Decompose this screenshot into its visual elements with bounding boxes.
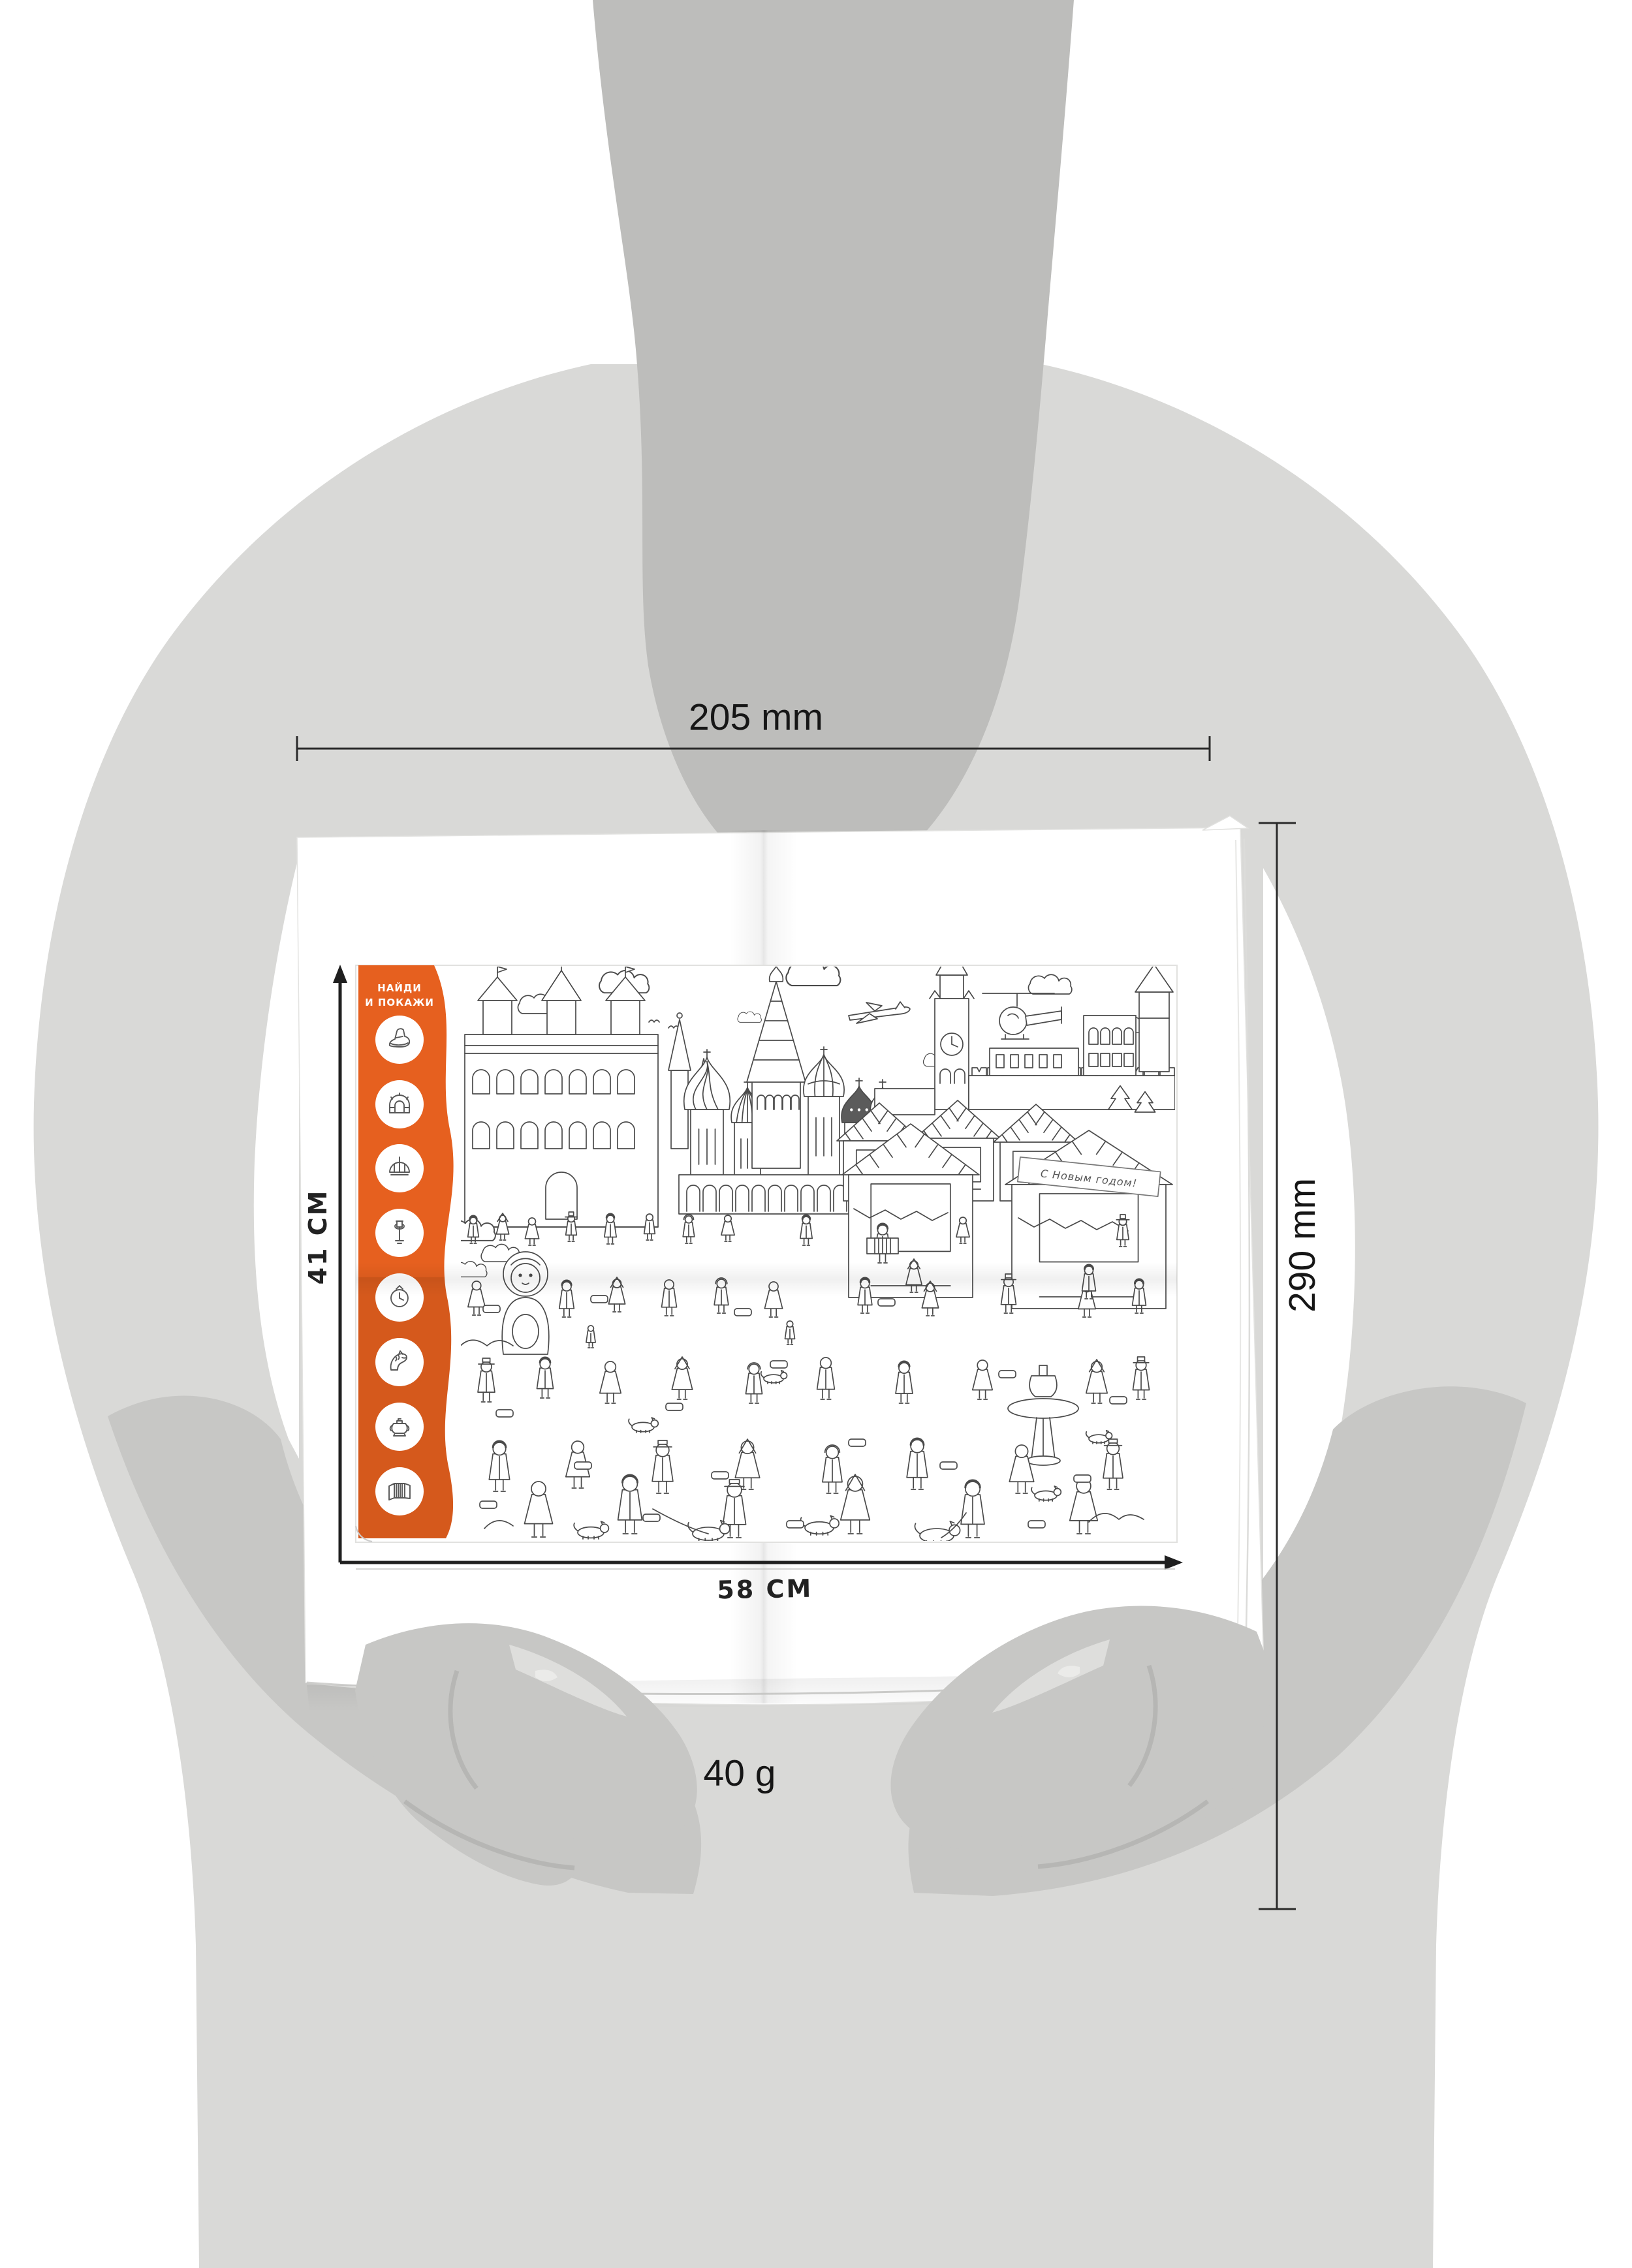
gum-building — [465, 960, 658, 1227]
horse-icon — [375, 1338, 424, 1386]
poster-height-label: 41 СМ — [304, 1189, 332, 1285]
snow-brick — [878, 1299, 895, 1306]
snow-brick — [734, 1309, 751, 1316]
felt-boot-icon — [375, 1016, 424, 1064]
snow-brick — [643, 1514, 660, 1521]
snow-brick — [666, 1403, 683, 1410]
mockup-canvas: НАЙДИ И ПОКАЖИ С Новым годом! 41 СМ 58 С… — [0, 0, 1632, 2268]
snow-brick — [574, 1462, 591, 1469]
arch-icon — [375, 1080, 424, 1128]
product-size-mockup: НАЙДИ И ПОКАЖИ С Новым годом! 41 СМ 58 С… — [0, 0, 1632, 2268]
snow-brick — [1110, 1397, 1127, 1404]
snow-brick — [770, 1361, 787, 1368]
height-dimension-label: 290 mm — [1281, 1178, 1323, 1313]
samovar-icon — [375, 1403, 424, 1451]
dome-icon — [375, 1144, 424, 1192]
snow-brick — [480, 1501, 497, 1508]
accordion-icon — [375, 1467, 424, 1515]
snow-brick — [591, 1296, 608, 1303]
poster-horizontal-fold — [356, 1262, 1177, 1296]
width-dimension-label: 205 mm — [689, 696, 823, 738]
dome-drum — [808, 1096, 840, 1181]
snow-brick — [496, 1410, 513, 1417]
sidebar-title-line1: НАЙДИ — [377, 982, 422, 994]
snow-brick — [940, 1462, 957, 1469]
snow-brick — [1074, 1475, 1091, 1482]
snow-brick — [849, 1439, 866, 1446]
cloud — [738, 1012, 762, 1022]
poster-width-label: 58 СМ — [717, 1574, 813, 1605]
snow-brick — [712, 1472, 729, 1479]
sidebar-title-line2: И ПОКАЖИ — [365, 997, 434, 1008]
snow-brick — [999, 1371, 1016, 1378]
poster: НАЙДИ И ПОКАЖИ С Новым годом! 41 СМ 58 С… — [304, 933, 1183, 1604]
snow-brick — [483, 1305, 500, 1313]
snow-brick — [1028, 1521, 1045, 1528]
street-lamp-icon — [375, 1209, 424, 1257]
snow-brick — [787, 1521, 804, 1528]
weight-label: 40 g — [704, 1752, 776, 1794]
